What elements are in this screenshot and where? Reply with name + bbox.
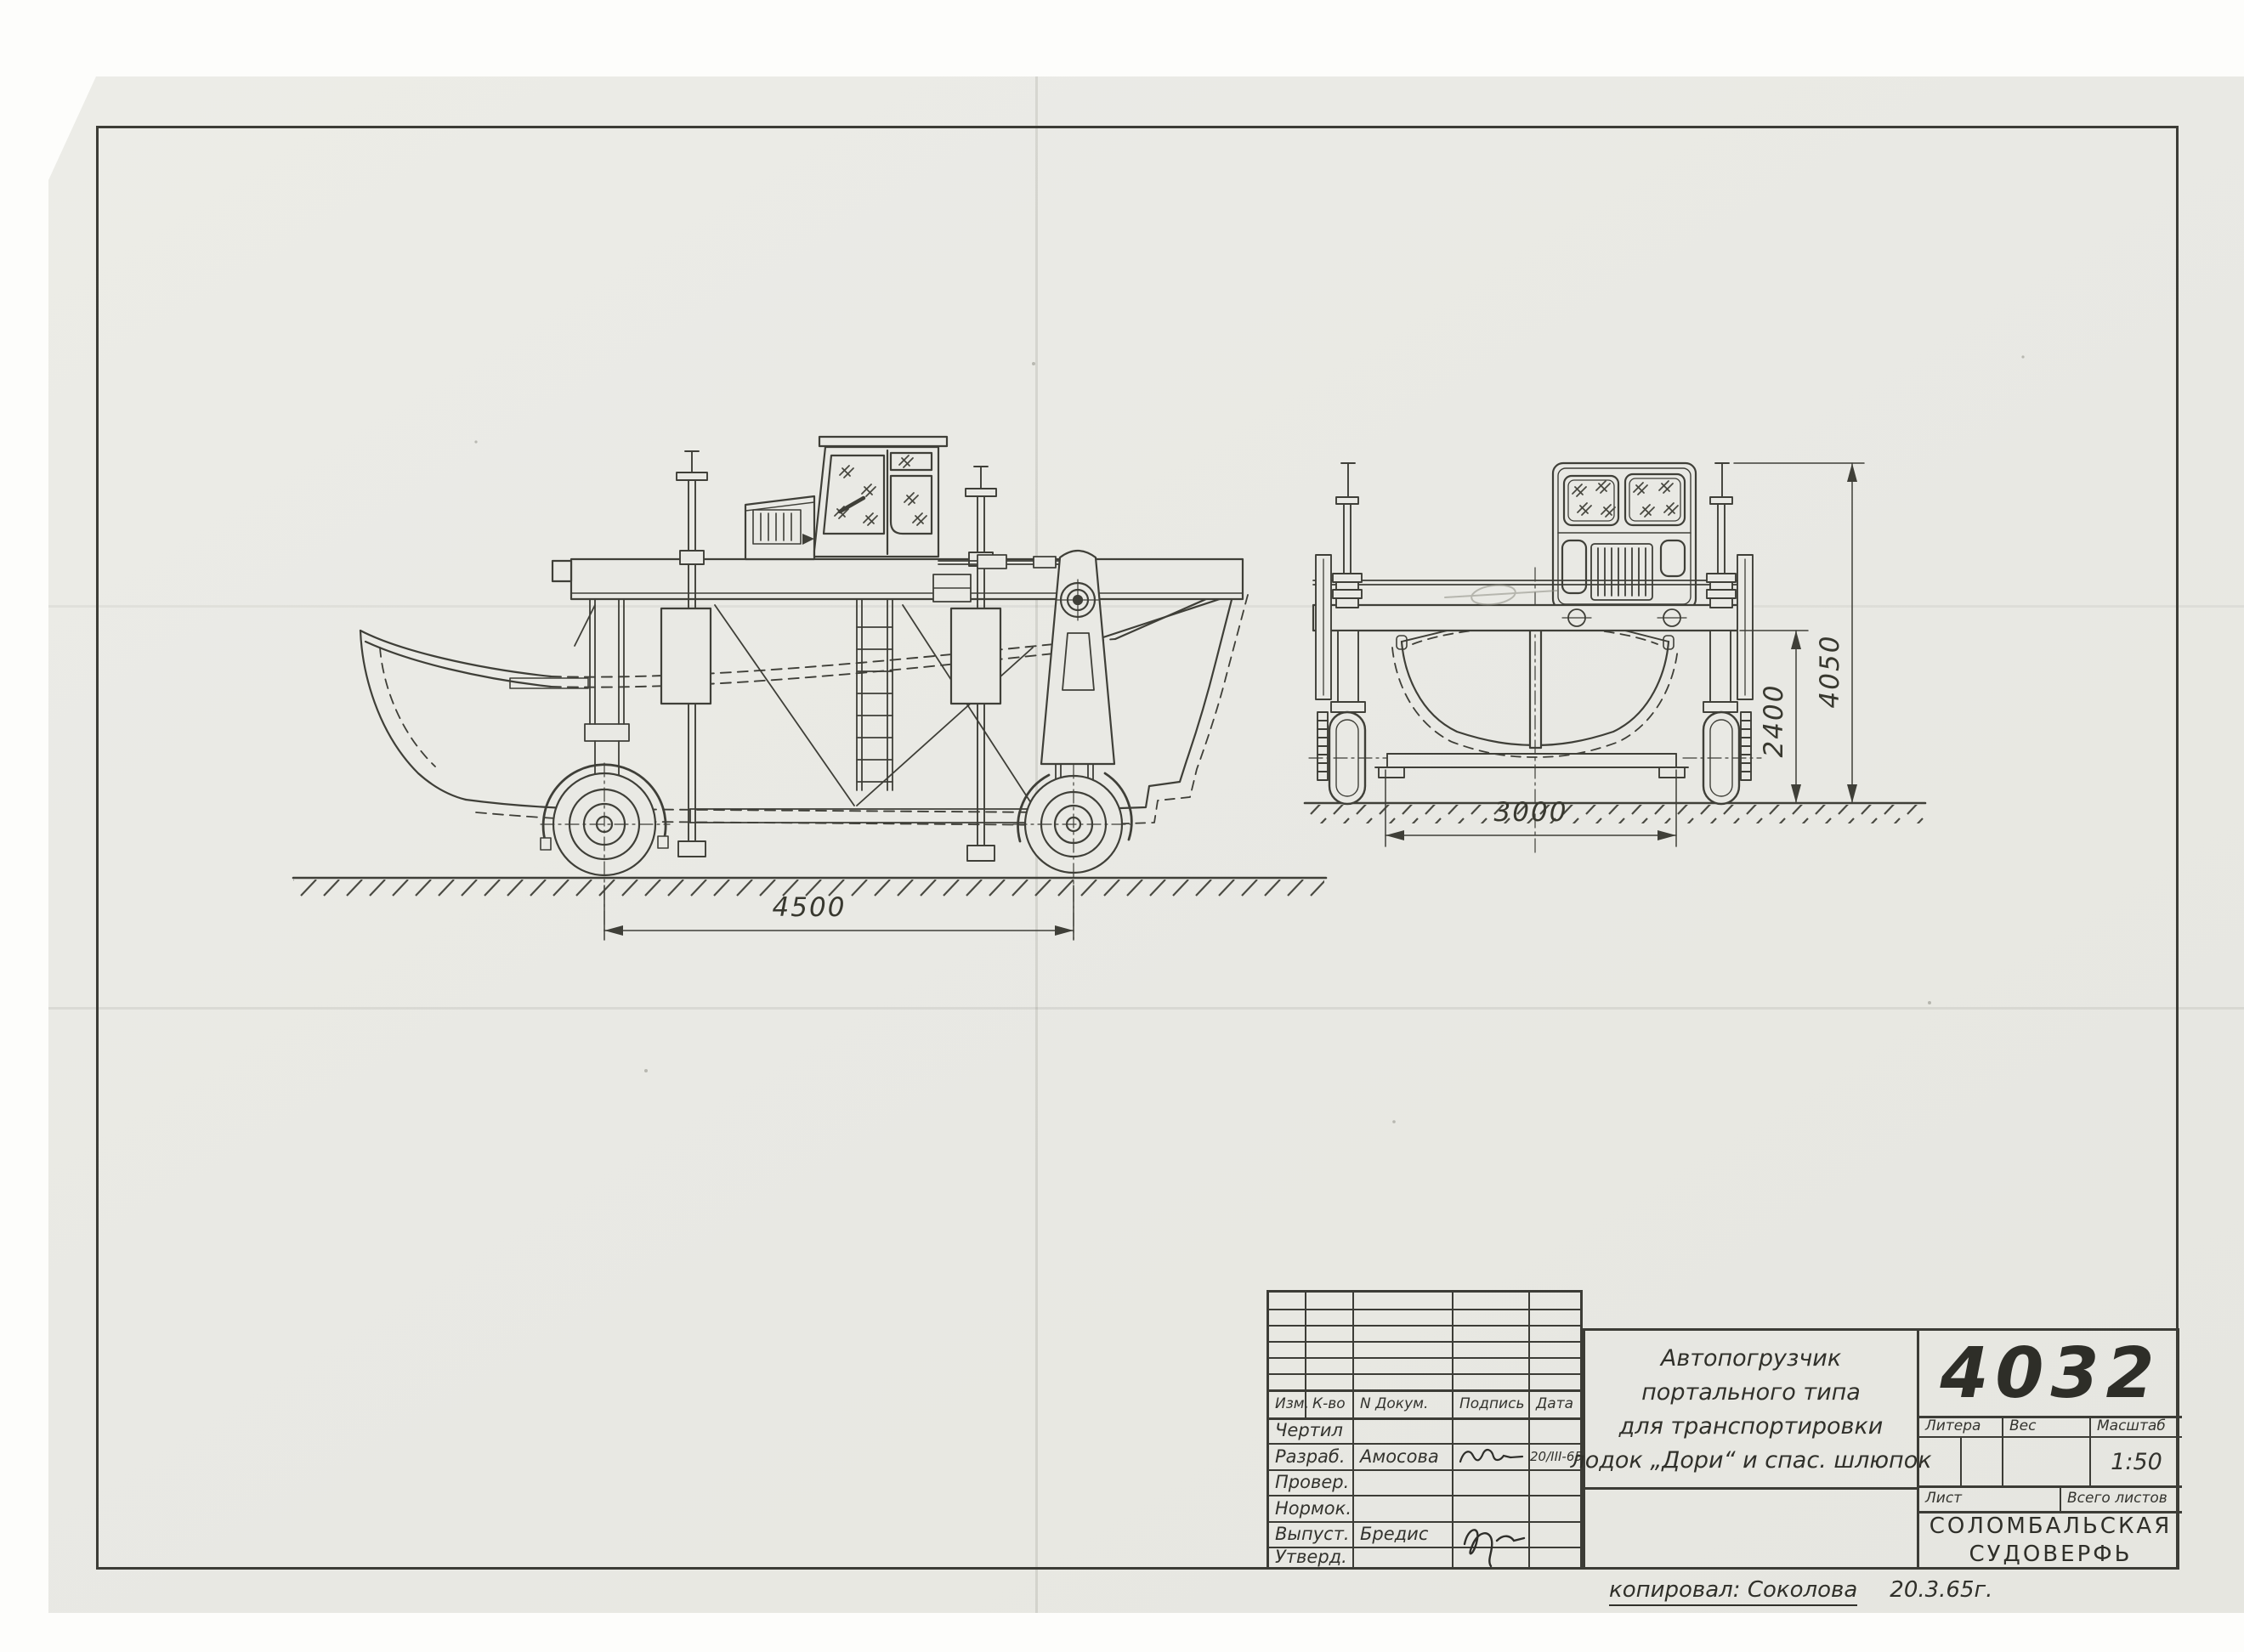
cab-front — [1553, 463, 1696, 609]
left-leg — [1309, 463, 1387, 804]
front-view: 3000 2400 4050 — [1305, 463, 1925, 854]
col-izm: Изм. — [1269, 1389, 1305, 1417]
copied-date: 20.3.65г. — [1890, 1577, 1992, 1606]
row-normok: Нормок. — [1269, 1495, 1352, 1521]
paper-specks — [474, 355, 2024, 1123]
front-mast-housing — [661, 608, 711, 704]
signature-amosova — [1456, 1445, 1527, 1468]
front-wheel-side — [541, 763, 670, 935]
signature-bredis — [1456, 1522, 1527, 1570]
row-prover: Провер. — [1269, 1469, 1352, 1495]
copied-note-line: копировал: Соколова 20.3.65г. — [1609, 1577, 1992, 1606]
drawing-title-cell: Автопогрузчик портального типа для транс… — [1585, 1331, 1917, 1487]
ground-front — [1305, 803, 1925, 823]
col-podpis: Подпись — [1453, 1389, 1528, 1417]
row-utverd: Утверд. — [1269, 1547, 1352, 1567]
name-amosova: Амосова — [1354, 1443, 1452, 1469]
copied-note: копировал: Соколова — [1609, 1577, 1857, 1606]
engine-hood — [745, 496, 814, 559]
company-cell: Соломбальская судоверфь — [1919, 1513, 2182, 1567]
litera-label: Литера — [1919, 1416, 2002, 1436]
pencil-mark — [1445, 582, 1557, 607]
drawing-number: 4032 — [1919, 1331, 2182, 1416]
dim-track-label: 3000 — [1494, 797, 1568, 828]
main-stamp: Автопогрузчик портального типа для транс… — [1583, 1328, 2179, 1570]
row-chertil: Чертил — [1269, 1417, 1352, 1443]
list-label: Лист — [1919, 1485, 2060, 1511]
boat-side-profile — [360, 586, 1248, 825]
col-kvo: К-во — [1306, 1389, 1352, 1417]
side-view: 4500 — [293, 437, 1326, 940]
title-line-2: портального типа — [1641, 1379, 1861, 1406]
ves-label: Вес — [2003, 1416, 2089, 1436]
masshtab-label: Масштаб — [2091, 1416, 2182, 1436]
col-ndokum: N Докум. — [1354, 1389, 1452, 1417]
row-razrab: Разраб. — [1269, 1443, 1352, 1469]
left-rack — [1317, 712, 1328, 780]
scale-value: 1:50 — [2091, 1438, 2182, 1485]
cab-side — [802, 437, 947, 557]
revision-table: Изм. К-во N Докум. Подпись Дата Чертил Р… — [1266, 1290, 1583, 1570]
row-vypust: Выпуст. — [1269, 1521, 1352, 1547]
rear-wheel-side — [1013, 765, 1136, 939]
dim-height-label: 4050 — [1815, 635, 1845, 709]
ladder — [857, 599, 892, 790]
company-line-1: Соломбальская — [1919, 1513, 2182, 1541]
col-data: Дата — [1530, 1389, 1580, 1417]
title-line-1: Автопогрузчик — [1661, 1345, 1841, 1372]
title-line-3: для транспортировки — [1619, 1413, 1884, 1440]
name-bredis: Бредис — [1354, 1521, 1452, 1547]
right-rack — [1741, 712, 1751, 780]
frame-beam-side — [552, 559, 1243, 599]
title-block: Изм. К-во N Докум. Подпись Дата Чертил Р… — [1266, 1290, 2179, 1570]
rear-mast-housing — [951, 608, 1000, 704]
vsego-label: Всего листов — [2061, 1485, 2182, 1511]
scanned-drawing-sheet: 4500 — [0, 0, 2244, 1652]
dim-clearance-label: 2400 — [1759, 684, 1789, 758]
company-line-2: судоверфь — [1919, 1541, 2182, 1569]
dim-wheelbase-label: 4500 — [773, 892, 847, 923]
title-line-4: лодок „Дори“ и спас. шлюпок — [1570, 1447, 1931, 1474]
portal-beam — [1313, 605, 1738, 631]
